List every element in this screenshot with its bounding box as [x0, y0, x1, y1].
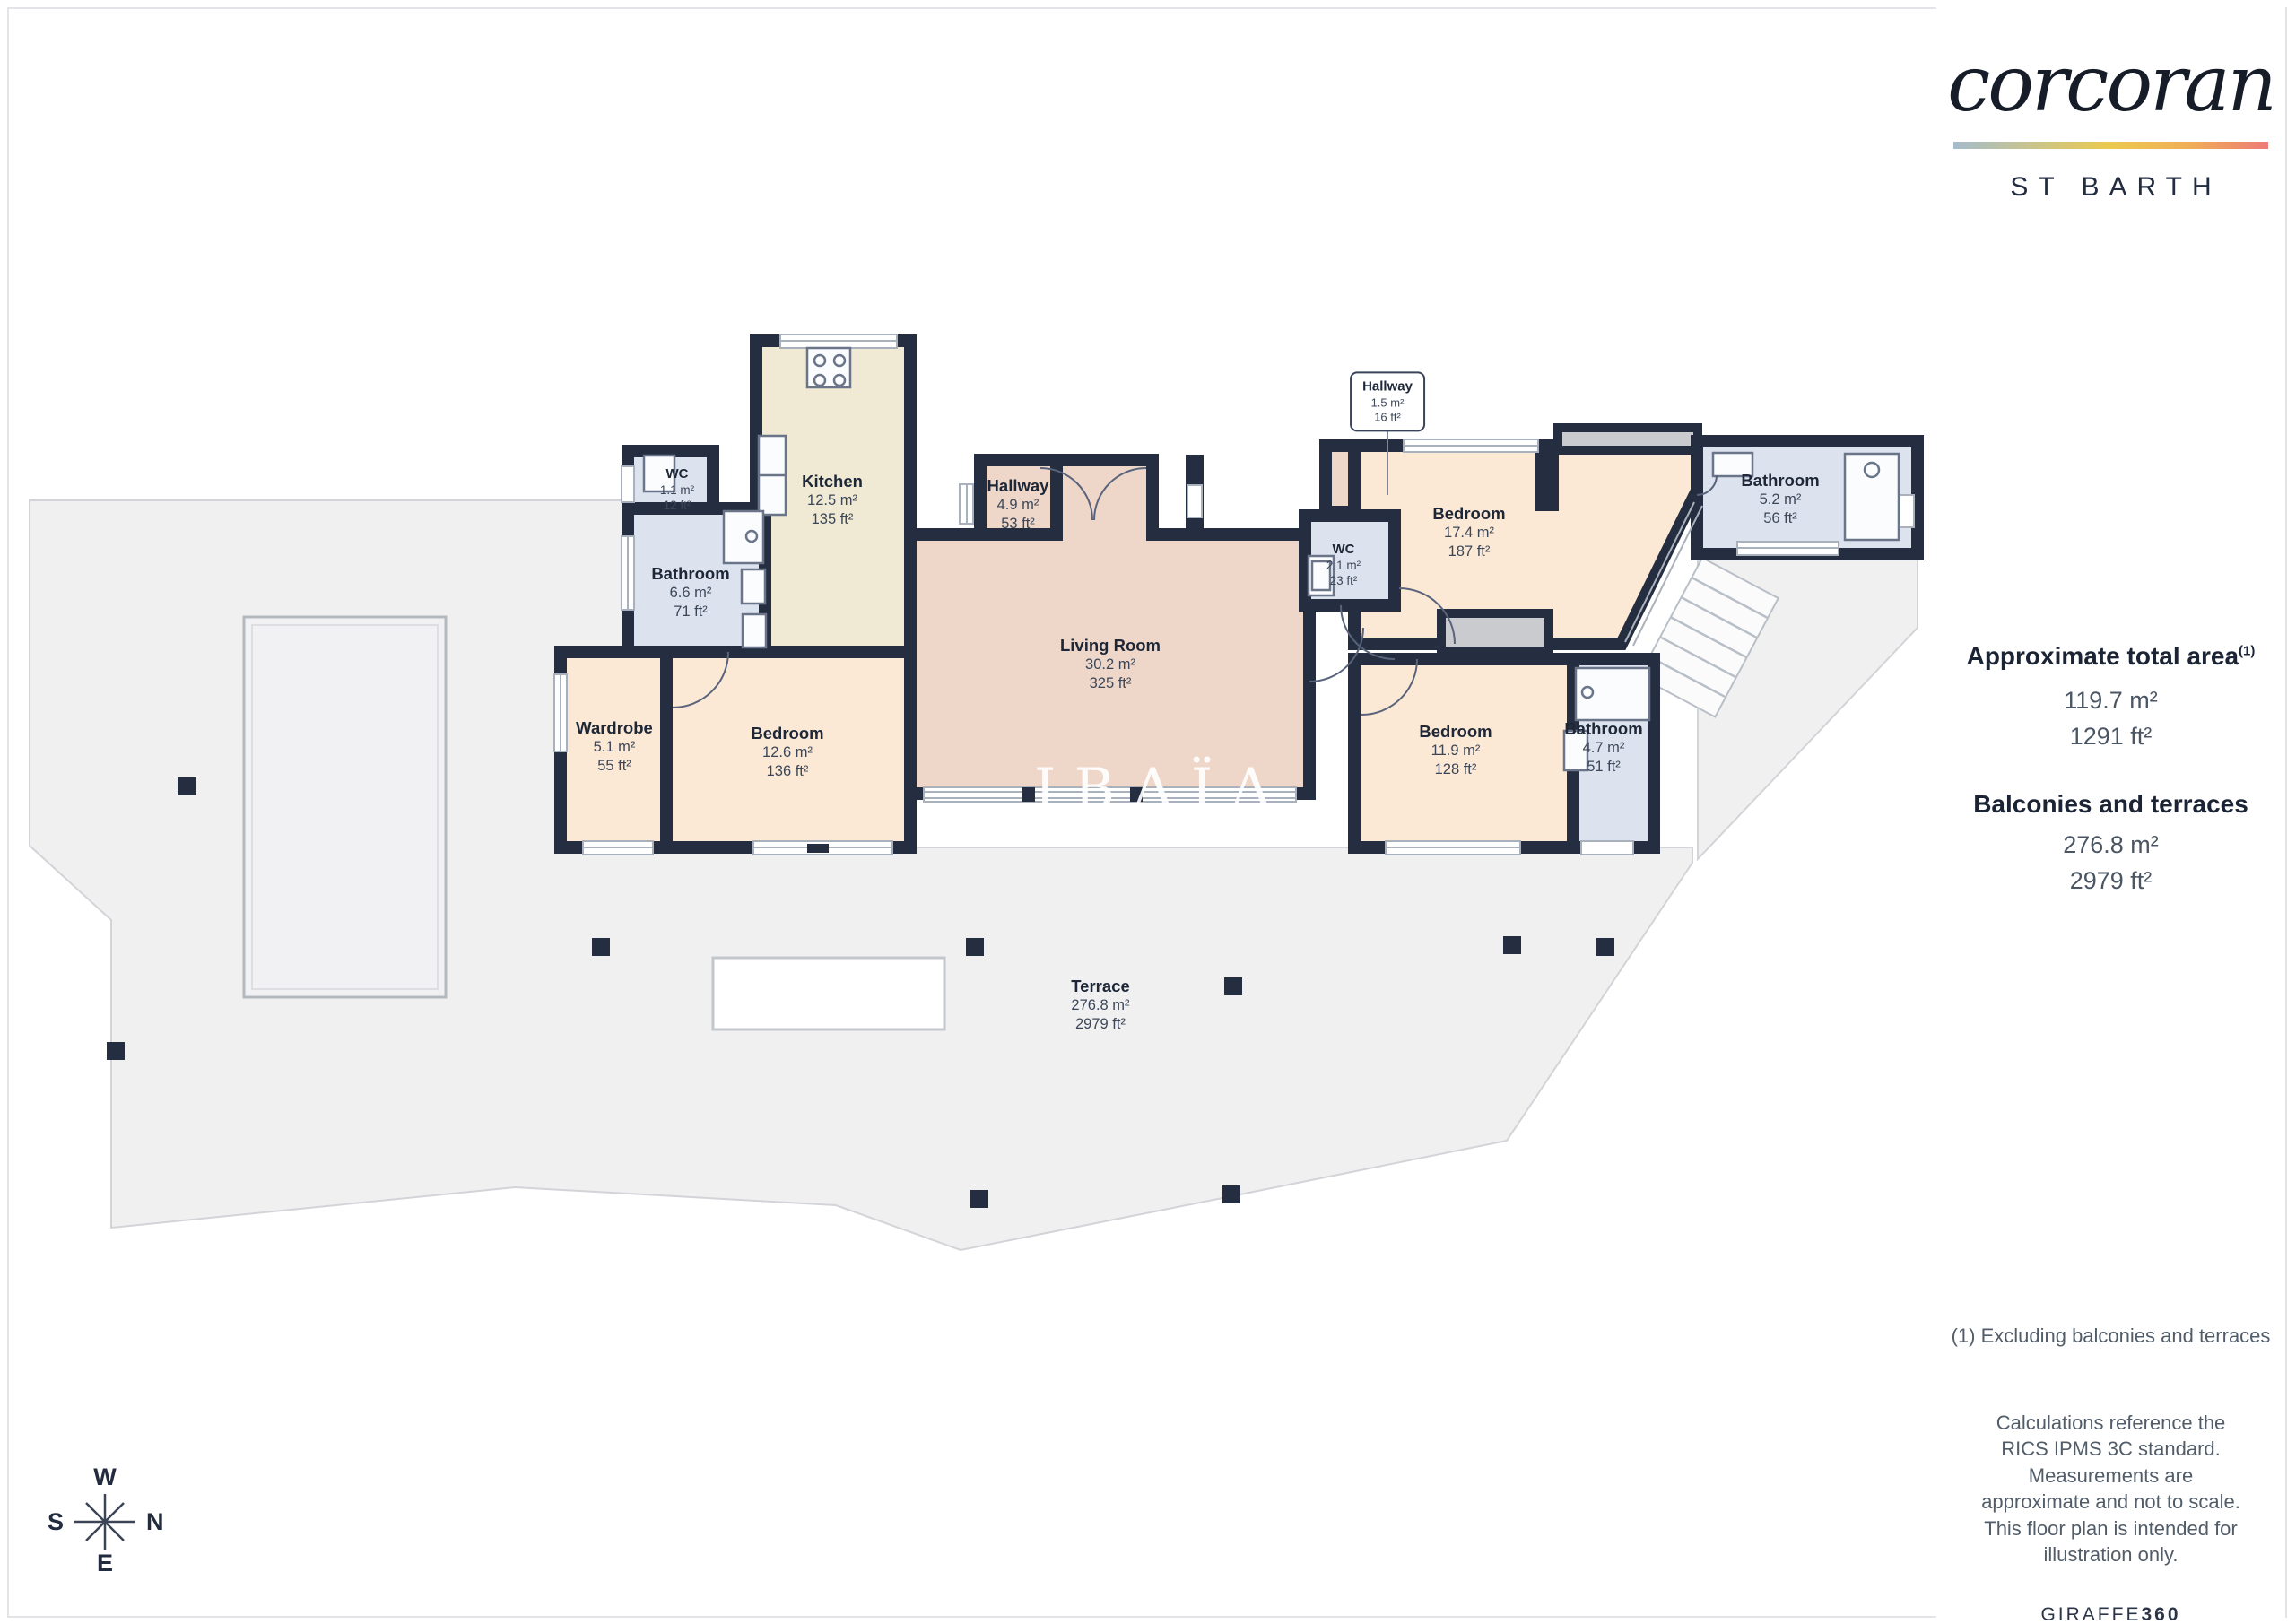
room-label-hallway-main: Hallway 4.9 m² 53 ft² [987, 475, 1049, 533]
room-label-kitchen: Kitchen 12.5 m² 135 ft² [802, 471, 863, 528]
room-area-ft2: 12 ft² [660, 498, 694, 513]
room-area-m2: 12.6 m² [751, 743, 823, 762]
balconies-ft2: 2979 ft² [1936, 867, 2285, 895]
room-area-m2: 12.5 m² [802, 491, 863, 510]
room-label-bedroom-west: Bedroom 12.6 m² 136 ft² [751, 723, 823, 780]
room-name: Bathroom [651, 563, 729, 584]
footnote-ref: (1) [2239, 644, 2255, 659]
terrace-table [713, 958, 944, 1029]
compass-east: E [97, 1550, 113, 1576]
pool-outline [244, 617, 446, 997]
room-label-bathroom-west: Bathroom 6.6 m² 71 ft² [651, 563, 729, 621]
floorplan-canvas: W N S E [0, 0, 1936, 1624]
room-area-ft2: 23 ft² [1326, 573, 1361, 588]
room-area-m2: 2.1 m² [1326, 559, 1361, 574]
room-callout-hallway-small: Hallway 1.5 m² 16 ft² [1350, 371, 1425, 431]
room-area-ft2: 51 ft² [1564, 758, 1642, 777]
shower-east [1576, 668, 1649, 720]
room-label-bedroom-east: Bedroom 11.9 m² 128 ft² [1419, 721, 1492, 778]
room-area-m2: 6.6 m² [651, 584, 729, 603]
compass: W N S E [48, 1463, 164, 1576]
room-area-ft2: 55 ft² [576, 757, 653, 776]
sidebar: corcoran ST BARTH Approximate total area… [1936, 0, 2285, 1624]
room-area-ft2: 187 ft² [1432, 543, 1505, 561]
room-name: Bathroom [1564, 718, 1642, 739]
room-name: Bedroom [1432, 503, 1505, 524]
shower-north [1845, 454, 1899, 540]
total-area-m2: 119.7 m² [1936, 687, 2285, 715]
room-label-bathroom-east: Bathroom 4.7 m² 51 ft² [1564, 718, 1642, 776]
room-name: Wardrobe [576, 717, 653, 738]
balconies-m2: 276.8 m² [1936, 831, 2285, 859]
compass-west: W [93, 1463, 117, 1490]
compass-south: S [48, 1508, 64, 1535]
total-area-ft2: 1291 ft² [1936, 723, 2285, 751]
compass-north: N [146, 1508, 164, 1535]
room-area-m2: 30.2 m² [1060, 656, 1161, 674]
room-area-ft2: 71 ft² [651, 603, 729, 621]
footnote: (1) Excluding balconies and terraces [1936, 1324, 2285, 1348]
room-label-wc-west: WC 1.1 m² 12 ft² [660, 466, 694, 514]
room-name: Bedroom [1419, 721, 1492, 742]
room-area-ft2: 136 ft² [751, 762, 823, 781]
room-name: Hallway [987, 475, 1049, 496]
credit-logo: GIRAFFE360 [1936, 1604, 2285, 1624]
room-area-m2: 1.5 m² [1362, 395, 1413, 411]
credit-bold: 360 [2141, 1604, 2180, 1624]
room-area-m2: 17.4 m² [1432, 524, 1505, 543]
room-area-m2: 4.9 m² [987, 496, 1049, 515]
balconies-title: Balconies and terraces [1936, 790, 2285, 819]
vestibule-gray [1441, 613, 1549, 651]
room-name: Bathroom [1741, 470, 1819, 491]
total-area-title: Approximate total area(1) [1936, 642, 2285, 671]
credit-regular: GIRAFFE [2040, 1604, 2141, 1624]
brand-gradient-bar [1953, 142, 2268, 149]
room-area-ft2: 135 ft² [802, 510, 863, 529]
room-name: WC [1326, 542, 1361, 559]
room-area-ft2: 16 ft² [1362, 411, 1413, 426]
room-label-wardrobe: Wardrobe 5.1 m² 55 ft² [576, 717, 653, 775]
room-area-m2: 5.1 m² [576, 738, 653, 757]
room-area-m2: 5.2 m² [1741, 491, 1819, 509]
room-area-m2: 11.9 m² [1419, 742, 1492, 760]
room-label-bedroom-north: Bedroom 17.4 m² 187 ft² [1432, 503, 1505, 560]
room-area-m2: 4.7 m² [1564, 739, 1642, 758]
brand-logo-wordmark: corcoran [1936, 39, 2285, 129]
area-summary: Approximate total area(1) 119.7 m² 1291 … [1936, 642, 2285, 895]
room-area-ft2: 128 ft² [1419, 760, 1492, 779]
room-area-ft2: 325 ft² [1060, 674, 1161, 693]
room-area-m2: 1.1 m² [660, 483, 694, 499]
room-area-ft2: 2979 ft² [1071, 1015, 1129, 1034]
room-area-ft2: 56 ft² [1741, 509, 1819, 528]
room-area-m2: 276.8 m² [1071, 996, 1129, 1015]
room-name: WC [660, 466, 694, 483]
room-label-terrace: Terrace 276.8 m² 2979 ft² [1071, 976, 1129, 1033]
room-label-wc-east: WC 2.1 m² 23 ft² [1326, 542, 1361, 589]
floorplan-page: W N S E WC 1.1 m² 12 ft² Kitchen 12.5 m²… [0, 0, 2296, 1624]
brand-location: ST BARTH [1936, 172, 2285, 203]
room-label-living-room: Living Room 30.2 m² 325 ft² [1060, 635, 1161, 692]
room-name: Terrace [1071, 976, 1129, 996]
room-name: Hallway [1362, 378, 1413, 395]
room-area-ft2: 53 ft² [987, 515, 1049, 534]
deck-north [1558, 428, 1698, 450]
room-name: Kitchen [802, 471, 863, 491]
room-name: Living Room [1060, 635, 1161, 656]
room-name: Bedroom [751, 723, 823, 743]
brand-logo: corcoran ST BARTH [1936, 39, 2285, 203]
disclaimer-block: Calculations reference the RICS IPMS 3C … [1936, 1410, 2285, 1624]
room-label-bathroom-north: Bathroom 5.2 m² 56 ft² [1741, 470, 1819, 527]
disclaimer-text: Calculations reference the RICS IPMS 3C … [1972, 1410, 2250, 1568]
